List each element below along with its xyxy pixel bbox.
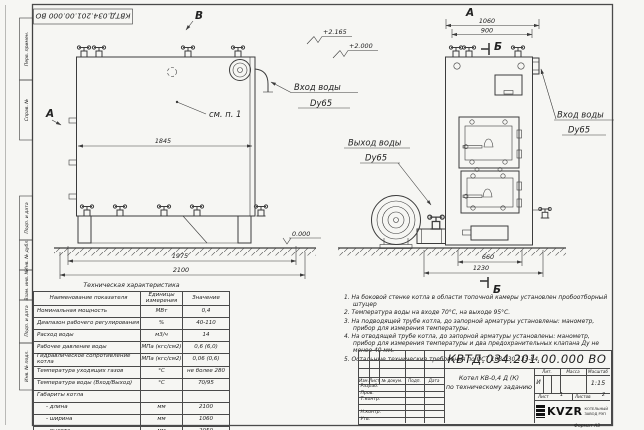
ash-drawer	[471, 226, 508, 240]
inlet-size-label: Dy65	[310, 98, 332, 108]
spec-row: Габариты котла	[34, 391, 229, 403]
view-title-a: А	[465, 7, 474, 19]
section-letter-b-top: Б	[494, 41, 502, 53]
dim-1060: 1060	[479, 17, 495, 25]
spec-row: Диапазон рабочего регулирования%40-110	[34, 318, 229, 330]
tb-col-data: Дата	[424, 379, 444, 383]
valve-icon	[539, 207, 552, 218]
note-item: 1. На боковой стенке котла в области топ…	[344, 295, 612, 309]
tb-sheets-label: Листов	[575, 395, 591, 399]
sidebar-label: Перв. примен.	[24, 32, 30, 67]
tb-lit-label: Лит.	[534, 370, 560, 374]
valve-icon	[428, 215, 445, 229]
tb-doc-number: КВТД.034.201.00.000 ВО	[444, 354, 610, 366]
dim-660: 660	[482, 253, 494, 261]
note-item: 2. Температура воды на входе 70°С, на вы…	[344, 310, 612, 317]
boiler-side-view: 1845 см. п. 1 Вход воды Dy65 В А +2.165 …	[45, 10, 378, 279]
tb-col-list: Лист	[369, 379, 379, 383]
sidebar-label: Подп. и дата	[24, 305, 30, 336]
inlet-flange	[533, 58, 540, 74]
inlet-pipe-elbow	[255, 69, 268, 92]
dim-2100: 2100	[173, 266, 189, 274]
dim-900: 900	[481, 27, 493, 35]
valve-icon	[190, 205, 203, 216]
tb-role: Т.контр.	[361, 398, 381, 403]
sidebar-label: Взам. инв. №	[24, 269, 30, 300]
tb-lit-value: И	[534, 380, 543, 386]
spec-row: Номинальная мощностьМВт0,4	[34, 306, 229, 318]
company-name-line2: ЗАВОД РЭП	[584, 412, 608, 416]
tb-sheet-value: 1	[560, 394, 563, 399]
spec-table-title: Техническая характеристика	[33, 282, 230, 289]
see-note-label: см. п. 1	[209, 109, 241, 119]
inlet-label: Вход воды	[294, 82, 341, 92]
valve-icon	[157, 205, 170, 216]
spec-header: Наименование показателя	[34, 292, 141, 305]
view-letter-b: В	[195, 10, 203, 22]
drawing-sheet: Перв. примен. Справ. № Подп. и дата Инв.…	[0, 0, 644, 430]
outlet-label: Выход воды	[348, 138, 402, 148]
tb-product-name-line1: Котел КВ-0,4 Д (К)	[444, 376, 534, 382]
note-item: 3. На подводящей трубе котла, до запорно…	[344, 319, 612, 333]
spec-row: - длинамм2100	[34, 403, 229, 415]
spec-header-row: Наименование показателя Единицы измерени…	[34, 292, 229, 306]
sidebar-label: Подп. и дата	[24, 202, 30, 233]
valve-icon	[80, 205, 93, 216]
title-block: Изм. Лист № докум. Подп. Дата Разраб. Пр…	[358, 350, 612, 425]
tb-sheets-value: 2	[602, 394, 605, 399]
spec-row: - ширинамм1060	[34, 415, 229, 427]
spec-row: Температура воды (Вход/Выход)°С70/95	[34, 379, 229, 391]
elevation-zero-label: 0.000	[292, 230, 310, 238]
tb-col-docnum: № докум.	[379, 379, 405, 383]
valve-icon	[462, 46, 475, 57]
tb-role: Н.контр.	[361, 411, 382, 416]
spec-header: Единицы измерения	[141, 292, 183, 305]
technical-characteristics-table: Наименование показателя Единицы измерени…	[33, 291, 230, 430]
valve-icon	[511, 46, 524, 57]
tb-sheet-label: Лист	[538, 395, 549, 399]
lower-door	[461, 171, 522, 213]
door-handle-icon	[483, 189, 492, 197]
control-panel	[495, 75, 522, 95]
outlet-size-label: Dy65	[365, 153, 387, 163]
tb-mass-label: Масса	[560, 370, 586, 374]
valve-icon	[181, 46, 194, 57]
tb-product-name-line2: по техническому заданию	[444, 385, 534, 391]
upper-door	[459, 117, 522, 168]
sidebar-label: Инв. № дубл.	[24, 239, 30, 270]
tb-scale-value: 1:15	[586, 380, 610, 387]
valve-icon	[113, 205, 126, 216]
tb-role: Пров.	[361, 392, 374, 397]
sidebar-label: Справ. №	[24, 99, 30, 122]
dim-1975: 1975	[172, 252, 188, 260]
top-stamp-number: КВТД.034.201.00.000 ВО	[35, 12, 130, 21]
door-handle-icon	[484, 139, 493, 147]
fan-blower	[372, 196, 421, 249]
format-label: Формат А3	[574, 424, 600, 429]
inlet-front-size-label: Dy65	[568, 125, 590, 135]
spec-header: Значение	[183, 292, 229, 305]
spec-row: Гидравлическое сопротивление котлаМПа (к…	[34, 354, 229, 367]
sidebar-label: Инв. № подл.	[24, 350, 30, 382]
view-letter-a: А	[45, 108, 54, 120]
tb-role: Утв.	[361, 418, 371, 423]
valve-icon	[92, 46, 105, 57]
tb-scale-label: Масштаб	[586, 370, 610, 374]
spec-row: Температура уходящих газов°Сне более 280	[34, 367, 229, 379]
company-logo-icon	[536, 405, 545, 418]
elevation-label: +2.165	[323, 28, 347, 36]
inlet-front-label: Вход воды	[557, 110, 604, 120]
valve-icon	[254, 205, 267, 216]
company-logo-block: KVZR КОТЕЛЬНЫЙ ЗАВОД РЭП	[534, 400, 610, 423]
dim-1230: 1230	[473, 264, 489, 272]
elevation-label: +2.000	[349, 42, 373, 50]
boiler-front-view: А 1060 900 Б Вход воды Dy65	[338, 7, 614, 296]
tb-col-izm: Изм.	[359, 379, 369, 383]
valve-icon	[77, 46, 90, 57]
company-logo-text: KVZR	[547, 405, 582, 418]
valve-icon	[231, 46, 244, 57]
spec-row: Расход водым3/ч14	[34, 330, 229, 342]
valve-icon	[449, 46, 462, 57]
dim-1845: 1845	[155, 137, 171, 145]
tb-col-podp: Подп.	[405, 379, 424, 383]
spec-row: - высотамм2050	[34, 427, 229, 430]
tb-role: Разраб.	[361, 385, 379, 390]
